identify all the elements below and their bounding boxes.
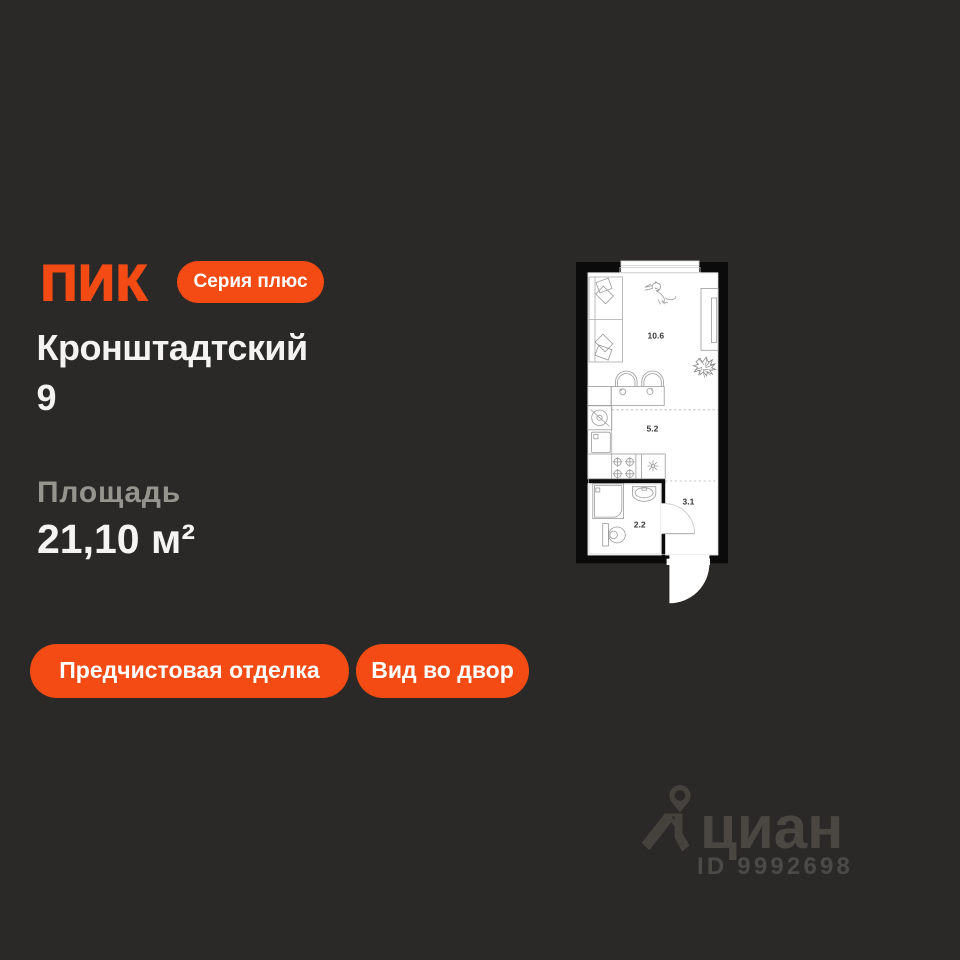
svg-text:10.6: 10.6: [648, 330, 665, 340]
svg-text:2.2: 2.2: [634, 520, 646, 530]
svg-text:3.1: 3.1: [683, 497, 695, 507]
svg-text:5.2: 5.2: [647, 424, 659, 434]
